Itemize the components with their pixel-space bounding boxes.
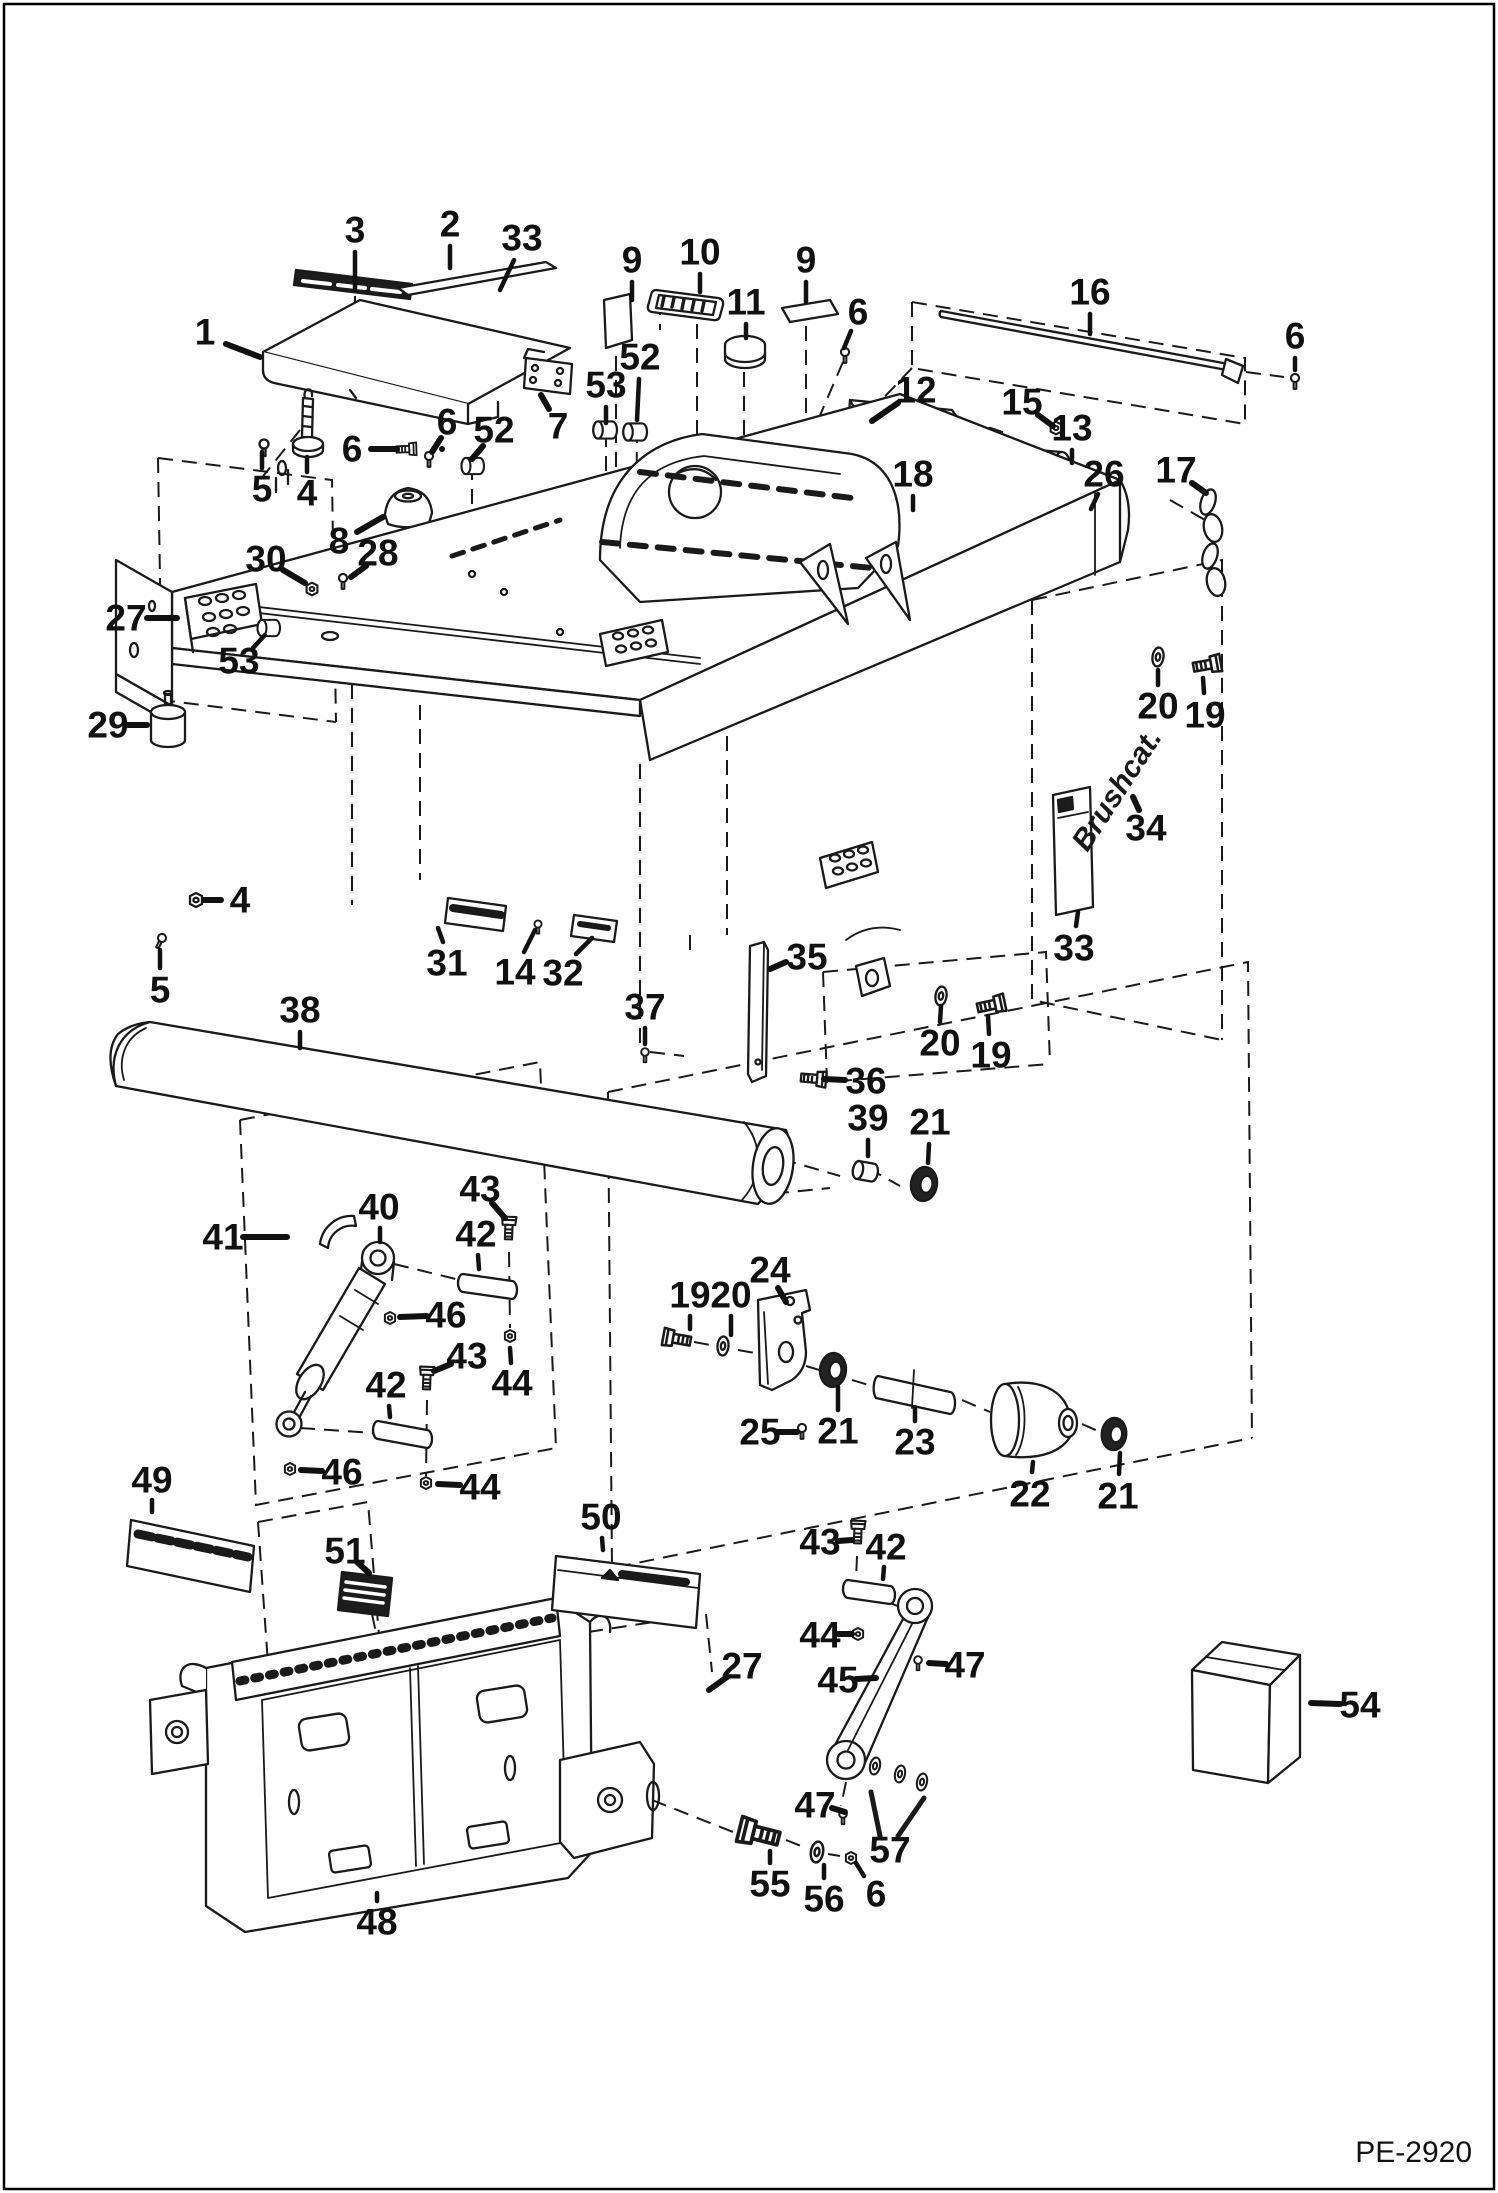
callout-label-6: 6 [437, 402, 458, 443]
callout-leader-22 [1032, 1462, 1033, 1472]
callout-label-11: 11 [726, 282, 765, 323]
callout-label-40: 40 [358, 1187, 399, 1228]
callout-label-46: 46 [321, 1452, 362, 1493]
callout-label-2: 2 [440, 204, 461, 245]
nut-46a [385, 1312, 395, 1324]
callout-leader-50 [602, 1538, 603, 1550]
figure-code: PE-2920 [1355, 2136, 1472, 2169]
callout-label-16: 16 [1069, 272, 1110, 313]
callout-label-6: 6 [848, 292, 869, 333]
callout-label-38: 38 [279, 990, 320, 1031]
callout-label-9: 9 [622, 240, 643, 281]
callout-label-12: 12 [895, 370, 936, 411]
callout-label-26: 26 [1083, 454, 1124, 495]
callout-leader-20 [940, 1006, 941, 1022]
callout-label-37: 37 [624, 987, 665, 1028]
callout-leader-44 [510, 1348, 511, 1363]
callout-label-36: 36 [845, 1061, 886, 1102]
nut-4b [190, 893, 202, 907]
callout-label-28: 28 [357, 533, 398, 574]
part-54-box [1192, 1642, 1300, 1783]
washer-20c [717, 1336, 730, 1356]
callout-label-15: 15 [1001, 382, 1042, 423]
callout-label-54: 54 [1339, 1685, 1381, 1726]
callout-leader-36 [824, 1079, 845, 1080]
bushing-53b [258, 620, 281, 636]
callout-label-27: 27 [105, 598, 146, 639]
callout-leader-44 [438, 1484, 460, 1485]
decal-51 [338, 1572, 392, 1616]
callout-label-1: 1 [195, 312, 216, 353]
callout-label-52: 52 [473, 410, 514, 451]
callout-label-43: 43 [446, 1336, 487, 1377]
part-11-cap [725, 336, 765, 368]
callout-label-10: 10 [679, 232, 720, 273]
callout-label-14: 14 [494, 952, 536, 993]
callout-label-24: 24 [749, 1250, 791, 1291]
callout-label-20: 20 [1137, 686, 1178, 727]
callout-label-23: 23 [894, 1422, 935, 1463]
callout-label-50: 50 [580, 1497, 621, 1538]
callout-label-19: 19 [970, 1035, 1011, 1076]
callout-label-6: 6 [342, 429, 363, 470]
callout-label-39: 39 [847, 1098, 888, 1139]
callout-label-34: 34 [1125, 808, 1167, 849]
callout-label-42: 42 [455, 1214, 496, 1255]
callout-label-47: 47 [794, 1785, 835, 1826]
callout-label-49: 49 [131, 1460, 172, 1501]
callout-label-19: 19 [1184, 695, 1225, 736]
callout-leader-46 [301, 1470, 322, 1471]
callout-leader-21 [1119, 1453, 1120, 1474]
callout-label-7: 7 [548, 406, 569, 447]
callout-label-43: 43 [799, 1522, 840, 1563]
callout-label-29: 29 [87, 705, 128, 746]
callout-label-13: 13 [1051, 408, 1092, 449]
callout-leader-19 [988, 1016, 989, 1034]
callout-label-22: 22 [1009, 1474, 1050, 1515]
callout-leader-46 [400, 1316, 427, 1317]
callout-leader-54 [1311, 1703, 1340, 1704]
callout-label-56: 56 [803, 1879, 844, 1920]
callout-label-31: 31 [426, 943, 467, 984]
callout-label-21: 21 [817, 1411, 858, 1452]
nut-30 [307, 583, 318, 596]
callout-label-21: 21 [909, 1102, 950, 1143]
bushing-52b [623, 423, 647, 440]
callout-label-6: 6 [866, 1874, 887, 1915]
callout-label-42: 42 [865, 1527, 906, 1568]
part-35-strip [748, 942, 768, 1082]
callout-label-42: 42 [365, 1365, 406, 1406]
callout-leader-21 [928, 1144, 929, 1163]
callout-label-20: 20 [710, 1275, 751, 1316]
callout-57: 57 [869, 1830, 910, 1871]
parts-diagram: Brushcat. 132339101196166121513261718546… [0, 0, 1498, 2193]
callout-label-51: 51 [324, 1531, 365, 1572]
callout-label-33: 33 [1053, 928, 1094, 969]
callout-label-5: 5 [252, 469, 273, 510]
callout-label-9: 9 [796, 240, 817, 281]
callout-label-43: 43 [459, 1169, 500, 1210]
callout-label-5: 5 [150, 970, 171, 1011]
callout-leader-45 [856, 1678, 876, 1679]
callout-label-17: 17 [1155, 450, 1196, 491]
callout-label-35: 35 [786, 937, 827, 978]
callout-label-55: 55 [749, 1864, 790, 1905]
callout-label-53: 53 [218, 641, 259, 682]
callout-label-48: 48 [356, 1902, 397, 1943]
callout-label-27: 27 [721, 1646, 762, 1687]
callout-leader-52 [637, 379, 639, 420]
callout-label-44: 44 [459, 1467, 501, 1508]
callout-28: 28 [351, 533, 399, 578]
callout-label-21: 21 [1097, 1476, 1138, 1517]
callout-label-4: 4 [230, 880, 251, 921]
callout-label-32: 32 [542, 953, 583, 994]
callout-leader-33 [1076, 912, 1078, 926]
callout-label-44: 44 [491, 1363, 533, 1404]
callout-label-4: 4 [297, 473, 318, 514]
nut-46b [285, 1463, 295, 1475]
callout-label-44: 44 [799, 1615, 841, 1656]
callout-label-19: 19 [669, 1275, 710, 1316]
bushing-39 [852, 1160, 880, 1182]
callout-51: 51 [324, 1531, 369, 1574]
callout-label-3: 3 [345, 210, 366, 251]
callout-53: 53 [218, 635, 265, 682]
diagram-page: Brushcat. 132339101196166121513261718546… [0, 0, 1498, 2193]
nut-44b [421, 1477, 431, 1489]
callout-label-25: 25 [739, 1412, 780, 1453]
callout-label-8: 8 [329, 521, 350, 562]
callout-label-6: 6 [1285, 316, 1306, 357]
callout-label-45: 45 [817, 1660, 858, 1701]
callout-label-30: 30 [245, 539, 286, 580]
callout-leader-19 [1203, 678, 1204, 693]
callout-label-33: 33 [501, 218, 542, 259]
callout-label-52: 52 [619, 337, 660, 378]
callout-label-18: 18 [892, 454, 933, 495]
callout-label-57: 57 [869, 1830, 910, 1871]
callout-label-46: 46 [425, 1295, 466, 1336]
callout-label-20: 20 [919, 1023, 960, 1064]
nut-44a [505, 1330, 515, 1342]
callout-leader-42 [478, 1255, 479, 1269]
callout-leader-42 [389, 1406, 390, 1417]
callout-label-47: 47 [944, 1645, 985, 1686]
callout-leader-42 [883, 1567, 884, 1579]
callout-label-41: 41 [202, 1217, 243, 1258]
